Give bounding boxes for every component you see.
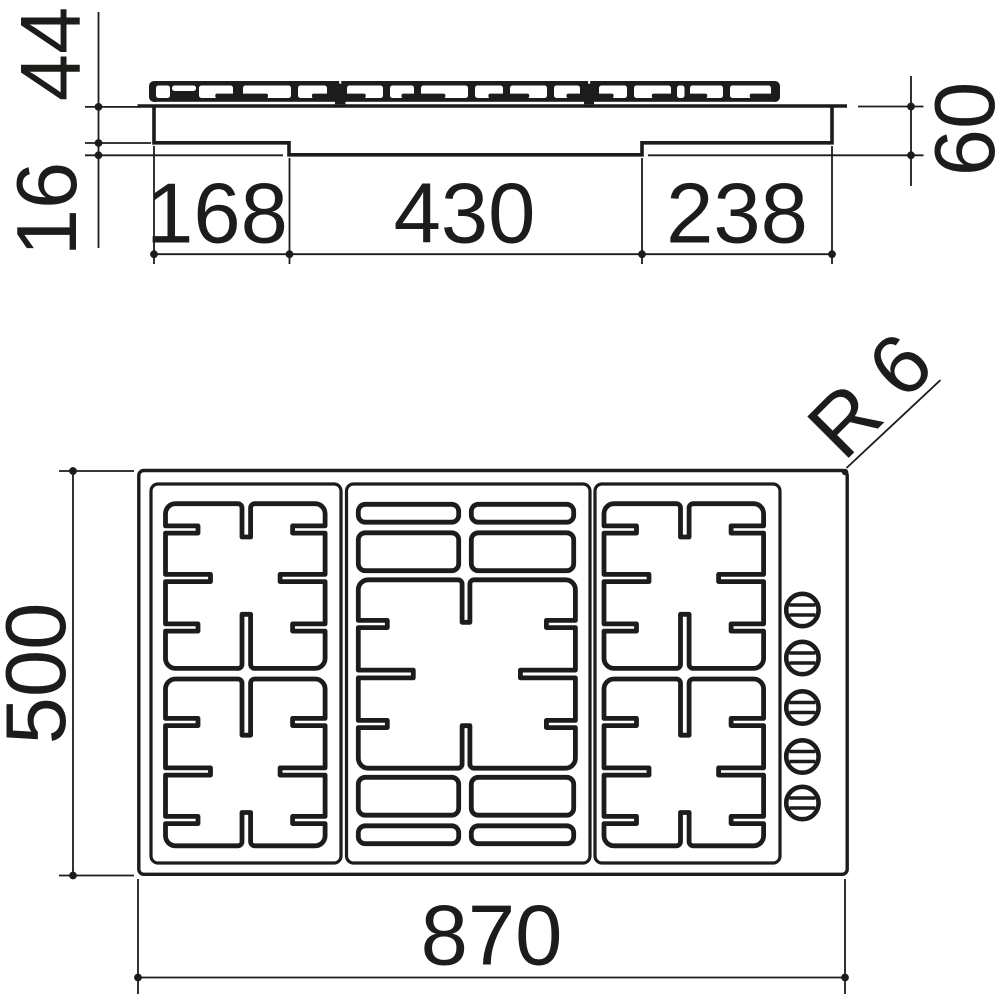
svg-text:168: 168 xyxy=(146,167,288,262)
svg-text:500: 500 xyxy=(0,603,84,745)
svg-text:16: 16 xyxy=(0,162,95,257)
svg-text:60: 60 xyxy=(918,82,1000,177)
svg-text:44: 44 xyxy=(4,7,99,102)
svg-text:870: 870 xyxy=(421,889,563,984)
svg-text:430: 430 xyxy=(394,167,536,262)
svg-text:238: 238 xyxy=(666,167,808,262)
